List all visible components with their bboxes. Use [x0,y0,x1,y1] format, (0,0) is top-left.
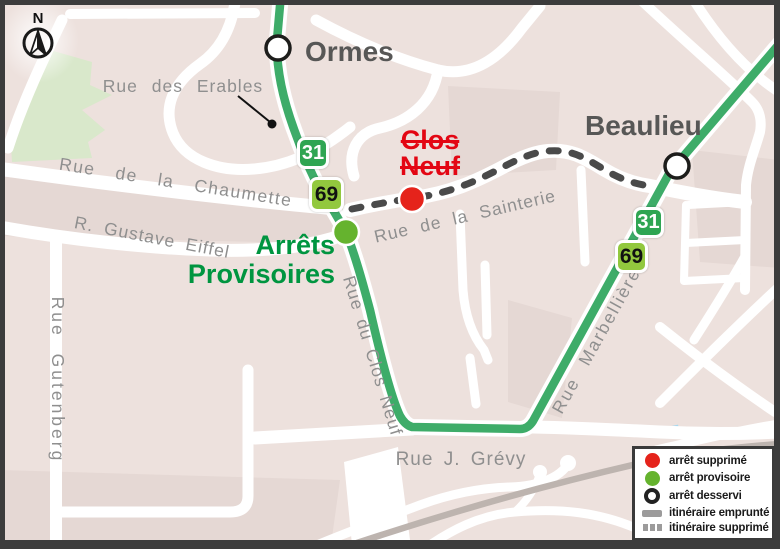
street-label-grevy: Rue J. Grévy [396,449,527,470]
route-badge-69-ormes: 69 [309,177,344,212]
map-canvas: Rue des Erables Rue de la Chaumette R. G… [0,0,780,549]
legend-label: itinéraire emprunté [669,507,769,519]
legend-item-route-used: itinéraire emprunté [641,507,766,519]
red-dot-icon [641,453,663,468]
stop-label-arrets-provisoires: Arrêts Provisoires [188,231,335,289]
stop-label-beaulieu: Beaulieu [585,110,702,142]
street-label-gutenberg: Rue Gutenberg [48,297,68,464]
served-stop-ormes [266,36,290,60]
map-legend: arrêt supprimé arrêt provisoire arrêt de… [632,446,775,541]
stop-label-clos-neuf: Clos Neuf [390,127,470,179]
compass-rose: N [13,6,65,73]
street-label-erables: Rue des Erables [103,76,263,96]
route-badge-69-beaulieu: 69 [615,240,648,273]
removed-stop-dot [399,186,425,212]
legend-label: itinéraire supprimé [669,522,769,534]
legend-label: arrêt desservi [669,490,742,502]
legend-label: arrêt provisoire [669,472,750,484]
street-leader-line [238,96,277,129]
legend-item-removed-stop: arrêt supprimé [641,453,766,468]
legend-item-temporary-stop: arrêt provisoire [641,471,766,486]
route-badge-31-beaulieu: 31 [633,207,664,238]
compass-north-label: N [33,10,44,27]
route-badge-31-ormes: 31 [297,137,329,169]
legend-item-route-removed: itinéraire supprimé [641,522,766,534]
dashed-bar-icon [641,524,663,531]
temporary-stop-dot [333,219,359,245]
legend-item-served-stop: arrêt desservi [641,488,766,504]
white-circle-icon [641,488,663,504]
legend-label: arrêt supprimé [669,455,747,467]
green-dot-icon [641,471,663,486]
served-stop-beaulieu [665,154,689,178]
solid-bar-icon [641,510,663,517]
stop-label-ormes: Ormes [305,36,394,68]
